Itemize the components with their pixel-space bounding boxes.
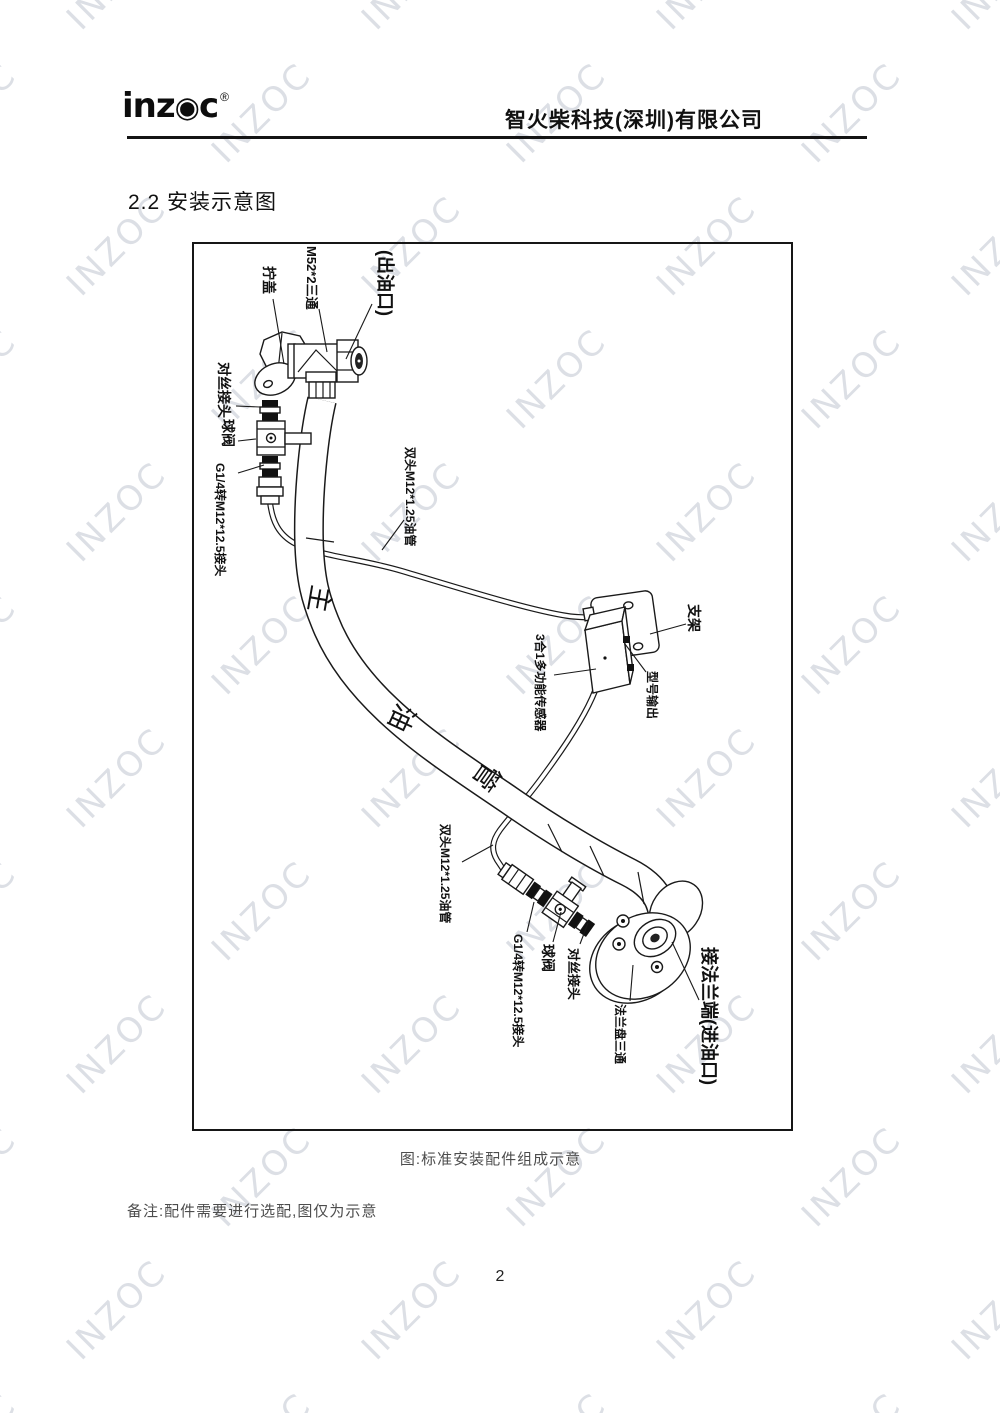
watermark-text: INZOC [59,720,175,836]
watermark-text: INZOC [0,1385,25,1413]
diagram-label-outlet-label: (出油口) [375,250,396,316]
diagram-label-output-label: 型号输出 [645,671,660,719]
installation-diagram: 拧盖M52*2三通(出油口)对丝接头球阀G1/4转M12*12.5接头双头M12… [194,244,791,1129]
leader-line [462,845,493,862]
page-number: 2 [0,1268,1000,1286]
tee-assembly [250,332,367,401]
watermark-text: INZOC [794,587,910,703]
watermark-text: INZOC [944,454,1000,570]
diagram-label-valve-label-bottom: 球阀 [540,944,556,972]
watermark-text: INZOC [499,1385,615,1413]
leader-line [382,520,404,550]
watermark-text: INZOC [944,720,1000,836]
watermark-text: INZOC [794,321,910,437]
logo-target-icon: ◉ [175,90,199,124]
diagram-label-adapter-label-top: G1/4转M12*12.5接头 [213,463,228,576]
company-name: 智火柴科技(深圳)有限公司 [505,104,763,134]
section-title: 2.2 安装示意图 [128,186,277,216]
diagram-label-union-label-bottom: 对丝接头 [566,948,581,1000]
diagram-label-sensor-label: 3合1多功能传感器 [533,634,548,732]
union-fitting [262,400,278,407]
figure-box: 拧盖M52*2三通(出油口)对丝接头球阀G1/4转M12*12.5接头双头M12… [192,242,793,1131]
figure-caption: 图:标准安装配件组成示意 [192,1148,789,1169]
watermark-text: INZOC [59,0,175,38]
watermark-text: INZOC [0,587,25,703]
valve-stub [285,433,311,444]
diagram-label-union-label-top: 对丝接头 [216,362,232,418]
document-page: INZOCINZOCINZOCINZOCINZOCINZOCINZOCINZOC… [0,0,1000,1413]
watermark-text: INZOC [204,1385,320,1413]
diagram-label-adapter-label-bottom: G1/4转M12*12.5接头 [511,934,526,1047]
registered-mark-icon: ® [220,90,229,104]
logo-text-pre: inz [122,86,175,126]
watermark-text: INZOC [944,986,1000,1102]
leader-lines [236,299,699,1001]
watermark-text: INZOC [499,1119,615,1235]
header-rule [127,136,867,139]
logo: inz◉c® [122,86,227,126]
diagram-label-pipe-label-bottom: 双头M12*1.25油管 [438,824,453,923]
diagram-label-flange-tee-label: 法兰盘三通 [613,1004,628,1064]
watermark-text: INZOC [0,1119,25,1235]
watermark-text: INZOC [944,0,1000,38]
diagram-label-cap-label: 拧盖 [261,266,277,294]
watermark-text: INZOC [59,986,175,1102]
adapter-fitting [259,477,281,487]
diagram-label-valve-label-top: 球阀 [220,419,236,447]
watermark-text: INZOC [649,0,765,38]
leader-line [236,406,260,407]
logo-text-post: c [199,86,218,126]
diagram-label-flange-end-label: 接法兰端(进油口) [699,947,720,1085]
watermark-text: INZOC [59,454,175,570]
watermark-text: INZOC [794,1119,910,1235]
watermark-text: INZOC [794,853,910,969]
hose-nut [309,382,335,398]
watermark-text: INZOC [0,321,25,437]
leader-line [238,439,256,441]
diagram-label-bracket-label: 支架 [686,603,702,632]
sensor-connector [627,664,634,671]
watermark-text: INZOC [794,1385,910,1413]
watermark-text: INZOC [354,0,470,38]
diagram-label-tee-label: M52*2三通 [304,246,319,310]
watermark-text: INZOC [944,188,1000,304]
sensor-connector [623,636,630,643]
watermark-text: INZOC [794,55,910,171]
watermark-text: INZOC [0,55,25,171]
note-text: 备注:配件需要进行选配,图仅为示意 [127,1200,377,1221]
diagram-label-pipe-label-top: 双头M12*1.25油管 [403,447,418,546]
watermark-text: INZOC [0,853,25,969]
leader-line [527,902,534,932]
diagram-label-hose-char-1: 主 [301,583,336,615]
